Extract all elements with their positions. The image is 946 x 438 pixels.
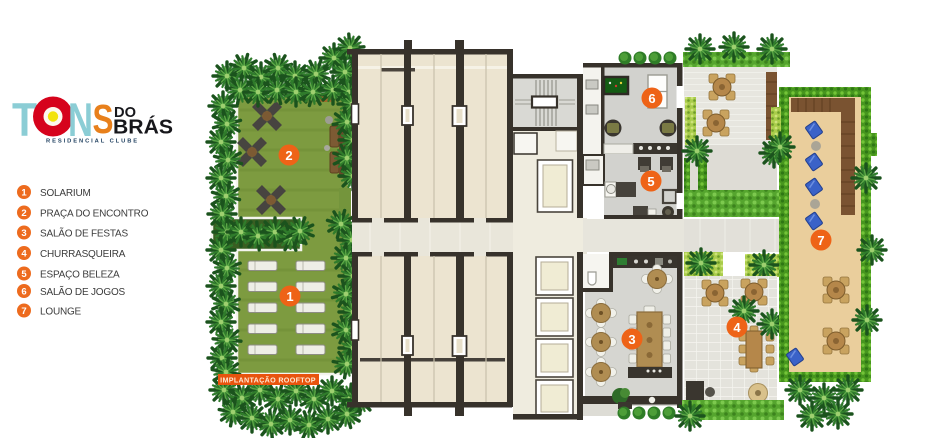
svg-text:2: 2	[21, 208, 26, 219]
svg-text:SALÃO DE FESTAS: SALÃO DE FESTAS	[40, 227, 128, 240]
svg-text:RESIDENCIAL CLUBE: RESIDENCIAL CLUBE	[46, 139, 139, 145]
svg-text:6: 6	[648, 91, 655, 106]
svg-text:3: 3	[21, 228, 26, 239]
svg-text:SOLARIUM: SOLARIUM	[40, 188, 91, 199]
svg-text:S: S	[93, 96, 114, 142]
svg-text:SALÃO DE JOGOS: SALÃO DE JOGOS	[40, 285, 126, 298]
svg-text:6: 6	[21, 286, 26, 297]
svg-text:7: 7	[817, 233, 824, 248]
svg-text:1: 1	[21, 187, 27, 198]
svg-text:PRAÇA DO ENCONTRO: PRAÇA DO ENCONTRO	[40, 209, 149, 220]
svg-text:ESPAÇO BELEZA: ESPAÇO BELEZA	[40, 270, 120, 281]
svg-text:IMPLANTAÇÃO ROOFTOP: IMPLANTAÇÃO ROOFTOP	[220, 376, 316, 385]
svg-text:5: 5	[21, 269, 27, 280]
svg-text:7: 7	[21, 306, 26, 317]
svg-text:4: 4	[733, 320, 741, 335]
svg-text:2: 2	[285, 148, 292, 163]
svg-text:CHURRASQUEIRA: CHURRASQUEIRA	[40, 249, 126, 260]
svg-text:4: 4	[21, 248, 27, 259]
svg-text:3: 3	[628, 332, 635, 347]
svg-text:LOUNGE: LOUNGE	[40, 307, 82, 318]
svg-text:5: 5	[647, 174, 654, 189]
svg-text:1: 1	[286, 289, 293, 304]
svg-text:BRÁS: BRÁS	[113, 116, 173, 139]
